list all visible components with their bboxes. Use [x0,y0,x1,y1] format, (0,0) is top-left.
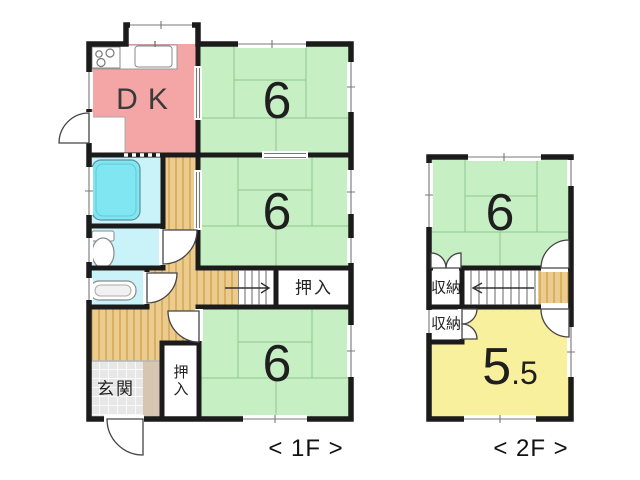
label-western-55-main: 5 [482,341,511,393]
floorplan-drawing [0,0,640,480]
stove-icon [92,47,120,68]
landing-2f [538,268,571,307]
genkan-step [143,361,162,417]
caption-2f: < 2F > [493,437,568,461]
label-western-55: 5.5 [482,341,538,393]
label-genkan: 玄関 [97,381,135,398]
label-tatami-2f: 6 [486,187,515,239]
toilet-icon [92,238,114,268]
label-dk: DK [116,85,178,115]
label-tatami-bottom: 6 [263,338,292,390]
caption-1f: < 1F > [268,437,343,461]
dk-cabinet [89,117,125,153]
label-storage-upper: 収納 [431,281,461,296]
label-oshiire-stairs: 押入 [295,280,333,297]
floorplan: DK 6 6 6 押入 押入 玄関 6 収納 収納 5.5 < 1F > < 2… [0,0,640,480]
washbasin-bowl [95,285,131,296]
label-tatami-mid: 6 [263,186,292,238]
label-tatami-top: 6 [263,75,292,127]
sink-icon [135,46,172,67]
kitchen-back-door [59,113,89,143]
bathtub-icon [92,160,140,220]
entrance-door [107,419,143,455]
label-western-55-sub: .5 [511,357,538,389]
label-storage-lower: 収納 [431,317,461,332]
label-oshiire-entrance: 押入 [173,364,188,398]
